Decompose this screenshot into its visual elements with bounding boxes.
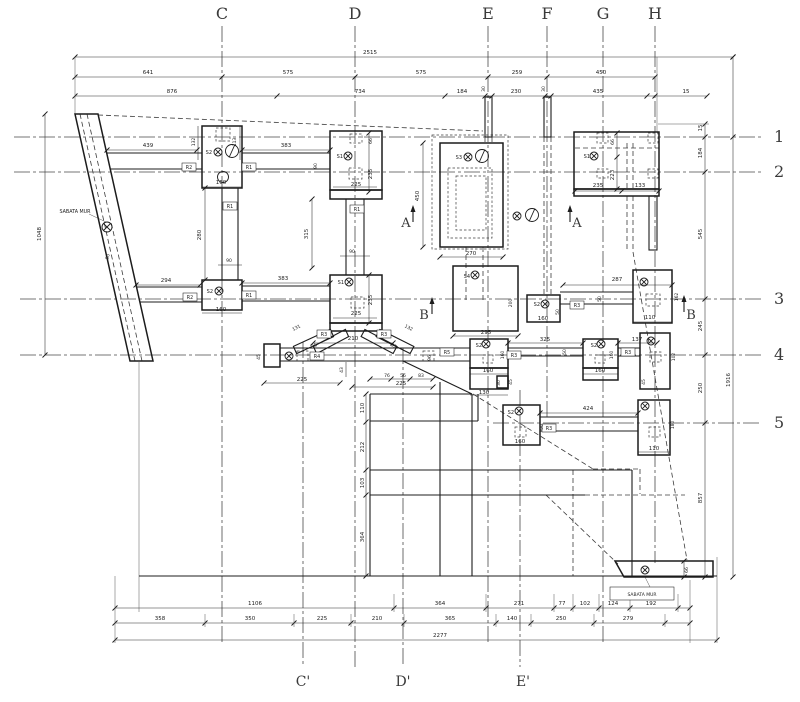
- dim-83: 83: [418, 373, 424, 379]
- dim-103-plat: 103: [360, 477, 366, 488]
- grid-col-d: D: [349, 4, 362, 23]
- dim-383-r2: 383: [281, 143, 292, 149]
- grid-col-h: H: [648, 4, 662, 23]
- foundation-plan-svg: R2R1R1R1R2R1R3R3R4R5R3R3R3R3 CDEFGH12345…: [0, 0, 800, 702]
- dim-45-x1: 45: [508, 379, 514, 385]
- dim-bot-358: 358: [155, 616, 166, 622]
- dim-top-575a: 575: [283, 70, 294, 76]
- dim-50-f3: 50: [555, 309, 561, 315]
- dim-132: 132: [191, 138, 197, 147]
- column-squares: [216, 128, 661, 437]
- benchmark-icon: [590, 152, 598, 160]
- dim-45-beam-end: 45: [256, 354, 262, 360]
- grid-row-2: 2: [774, 162, 784, 181]
- dim-bot-365: 365: [445, 616, 456, 622]
- dim-bot-124: 124: [608, 601, 619, 607]
- dim-364-plat: 364: [360, 531, 366, 542]
- label-s1-d3: S1: [338, 280, 344, 286]
- grid-col-e: E: [482, 4, 494, 23]
- dim-280-c: 280: [197, 229, 203, 240]
- label-s1-gh: S1: [584, 154, 590, 160]
- dim-bot-364: 364: [435, 601, 446, 607]
- beam-ref-r5: R5: [444, 350, 450, 356]
- dim-top-15: 15: [683, 89, 690, 95]
- benchmark-icon: [471, 271, 479, 279]
- grid-row-3: 3: [774, 289, 784, 308]
- dim-top-641: 641: [143, 70, 154, 76]
- dim-235-d3: 235: [368, 294, 374, 305]
- dim-200-s4: 200: [508, 299, 514, 308]
- dim-270-s3: 270: [466, 251, 477, 257]
- dim-35b: 35: [390, 342, 398, 350]
- grid-col-g: G: [597, 4, 610, 23]
- dim-56: 56: [400, 373, 406, 379]
- beams: [107, 153, 640, 431]
- dim-225-d3: 225: [351, 311, 362, 317]
- dim-90-r5: 90: [539, 424, 545, 430]
- wall-label-right: SABATA MUR: [627, 592, 656, 598]
- dim-top-30a: 30: [481, 86, 487, 92]
- benchmark-icon: [285, 352, 293, 360]
- benchmark-icon: [513, 212, 521, 220]
- dim-76: 76: [384, 373, 390, 379]
- dim-133-gh: 133: [635, 183, 646, 189]
- label-s3: S3: [456, 155, 462, 161]
- beam-ref-r3-d: R3: [574, 303, 580, 309]
- label-s2-f3: S2: [534, 302, 540, 308]
- beam-ref-r1-c: R1: [354, 207, 360, 213]
- beam-ref-r1-d: R1: [246, 293, 252, 299]
- dim-96: 96: [427, 355, 433, 361]
- benchmark-icon: [214, 148, 222, 156]
- dim-110-plat: 110: [360, 402, 366, 413]
- dim-right-545: 545: [698, 228, 704, 239]
- dim-top-734: 734: [355, 89, 366, 95]
- beam-ref-r2-b: R2: [187, 295, 193, 301]
- footing-gh-row12: [574, 132, 659, 189]
- dim-160-c3: 160: [216, 307, 227, 313]
- grid-col-d-prime: D': [395, 674, 410, 690]
- benchmark-icon: [541, 300, 549, 308]
- dim-160-f3: 160: [538, 316, 549, 322]
- dim-66-d2: 66: [368, 138, 374, 144]
- dim-bot-102: 102: [580, 601, 591, 607]
- dim-30-x1: 30: [496, 380, 502, 386]
- section-a-right: A: [571, 216, 582, 231]
- dim-90-d: 90: [349, 249, 355, 255]
- dim-bot-210: 210: [372, 616, 383, 622]
- dim-160-x2: 160: [595, 368, 606, 374]
- beam-reference-boxes: R2R1R1R1R2R1R3R3R4R5R3R3R3R3: [182, 163, 635, 432]
- extension-lines: [75, 57, 717, 643]
- beam-ref-r4: R4: [314, 354, 320, 360]
- wall-strip-e: [485, 97, 492, 137]
- dim-90-c: 90: [226, 258, 232, 264]
- section-b-left: B: [419, 308, 429, 323]
- section-b-right: B: [686, 308, 696, 323]
- dim-right-857: 857: [698, 492, 704, 503]
- beam-ref-r3-e: R3: [625, 350, 631, 356]
- wall-strip-h: [649, 196, 657, 250]
- dim-439: 439: [143, 143, 154, 149]
- grid-row-1: 1: [774, 127, 784, 146]
- beam-ref-r2-a: R2: [186, 165, 192, 171]
- dim-66-trap: 66: [684, 567, 690, 573]
- dim-top-435: 435: [593, 89, 604, 95]
- dim-bot-250: 250: [556, 616, 567, 622]
- dim-top-450: 450: [596, 70, 607, 76]
- dim-113: 113: [232, 138, 238, 147]
- dim-right-184: 184: [698, 147, 704, 158]
- dim-235-gh: 235: [593, 183, 604, 189]
- dim-bot-279: 279: [623, 616, 634, 622]
- dim-top-184: 184: [457, 89, 468, 95]
- beam-ref-r1-b: R1: [227, 204, 233, 210]
- dim-160-c2: 160: [216, 180, 227, 186]
- dim-bot-271: 271: [514, 601, 525, 607]
- label-s2-c2: S2: [206, 150, 212, 156]
- dim-450-s3: 450: [415, 190, 421, 201]
- section-marker-b-left: [430, 297, 435, 314]
- dim-66-gh: 66: [610, 139, 616, 145]
- dim-bot-77: 77: [559, 601, 566, 607]
- dim-160-r5: 160: [515, 439, 526, 445]
- dim-235-d2: 235: [368, 168, 374, 179]
- label-s2-c3: S2: [207, 289, 213, 295]
- dim-90-r2: 90: [313, 163, 319, 169]
- dim-left-1048: 1048: [37, 227, 43, 241]
- label-s4: S4: [464, 274, 470, 280]
- dim-315: 315: [304, 228, 310, 239]
- dim-110-g3: 110: [645, 315, 656, 321]
- dim-383-r3: 383: [278, 276, 289, 282]
- grid-col-f: F: [541, 4, 552, 23]
- dim-bot-140: 140: [507, 616, 518, 622]
- dim-110-r5: 110: [649, 446, 660, 452]
- section-markers: [411, 205, 687, 314]
- dim-160-x1r: 160: [500, 351, 506, 360]
- benchmark-icon: [345, 278, 353, 286]
- dim-210-braces: 210: [348, 336, 359, 342]
- dim-132b: 132: [403, 323, 414, 332]
- dim-bot-225: 225: [317, 616, 328, 622]
- dim-223-gh: 223: [610, 169, 616, 180]
- grid-col-c-prime: C': [296, 674, 311, 690]
- label-s2-r5: S2: [508, 410, 514, 416]
- grid-row-5: 5: [774, 413, 784, 432]
- datum-icon: [526, 209, 539, 222]
- dim-102-r4: 102: [671, 353, 677, 362]
- grid-row-4: 4: [774, 345, 784, 364]
- datum-icon: [476, 150, 489, 163]
- dim-424: 424: [583, 406, 594, 412]
- benchmark-icon: [464, 153, 472, 161]
- dim-total-bottom: 2277: [433, 633, 447, 639]
- grid-col-e-prime: E': [516, 674, 530, 690]
- dim-43: 43: [339, 367, 345, 373]
- section-marker-a-left: [411, 205, 416, 222]
- beam-ref-r3-a: R3: [321, 332, 327, 338]
- beam-ref-r3-f: R3: [546, 426, 552, 432]
- dim-212-plat: 212: [360, 442, 366, 453]
- wall-right-sabata-mur: [615, 561, 713, 577]
- benchmark-icon: [641, 402, 649, 410]
- survey-symbols: [102, 145, 655, 575]
- benchmark-icon: [102, 222, 112, 232]
- dim-right-1916: 1916: [726, 373, 732, 387]
- beam-end-plate: [264, 344, 280, 367]
- dim-right-250: 250: [698, 382, 704, 393]
- dim-top-259: 259: [512, 70, 523, 76]
- dim-180-r5: 180: [670, 421, 676, 430]
- dim-top-876: 876: [167, 89, 178, 95]
- dim-bot-192: 192: [646, 601, 657, 607]
- dim-287: 287: [612, 277, 623, 283]
- dim-294: 294: [161, 278, 172, 284]
- dim-45-r4: 45: [641, 379, 647, 385]
- dim-160-x1: 160: [483, 368, 494, 374]
- dim-225-d2: 225: [351, 182, 362, 188]
- label-s2-x2: S2: [591, 343, 597, 349]
- beam-ref-r1-a: R1: [246, 165, 252, 171]
- beam-ref-r3-c: R3: [511, 353, 517, 359]
- dim-162-g3: 162: [674, 293, 680, 302]
- benchmark-icon: [515, 407, 523, 415]
- benchmark-icon: [482, 340, 490, 348]
- dim-137: 137: [632, 337, 643, 343]
- dim-225-beam: 225: [297, 377, 308, 383]
- lower-platform: [139, 382, 717, 576]
- dim-50-g3: 50: [597, 296, 603, 302]
- drawing-canvas: R2R1R1R1R2R1R3R3R4R5R3R3R3R3 CDEFGH12345…: [0, 0, 800, 702]
- benchmark-icon: [641, 566, 649, 574]
- dim-top-230: 230: [511, 89, 522, 95]
- label-s2-x1: S2: [476, 343, 482, 349]
- dim-130-x1: 130: [479, 390, 490, 396]
- benchmark-icon: [597, 340, 605, 348]
- label-s1-d2: S1: [337, 154, 343, 160]
- dim-160-x2r: 160: [609, 351, 615, 360]
- beam-ref-r3-b: R3: [381, 332, 387, 338]
- wall-label-left: SABATA MUR: [60, 209, 92, 215]
- dim-total-top: 2515: [363, 50, 377, 56]
- dim-295-s4: 295: [481, 330, 492, 336]
- wall-strip-f: [544, 97, 551, 137]
- dim-325: 325: [540, 337, 551, 343]
- dim-right-15: 15: [698, 124, 704, 131]
- grid-col-c: C: [216, 4, 228, 23]
- dim-top-30b: 30: [541, 86, 547, 92]
- dim-50-x: 50: [562, 349, 568, 355]
- dim-top-575b: 575: [416, 70, 427, 76]
- wall-left-sabata-mur: [75, 114, 153, 361]
- dim-bot-350: 350: [245, 616, 256, 622]
- section-a-left: A: [400, 216, 411, 231]
- dim-right-245: 245: [698, 320, 704, 331]
- benchmark-icon: [344, 152, 352, 160]
- dim-bot-1106: 1106: [248, 601, 262, 607]
- dim-131: 131: [291, 323, 302, 332]
- dim-225-plat: 225: [396, 381, 407, 387]
